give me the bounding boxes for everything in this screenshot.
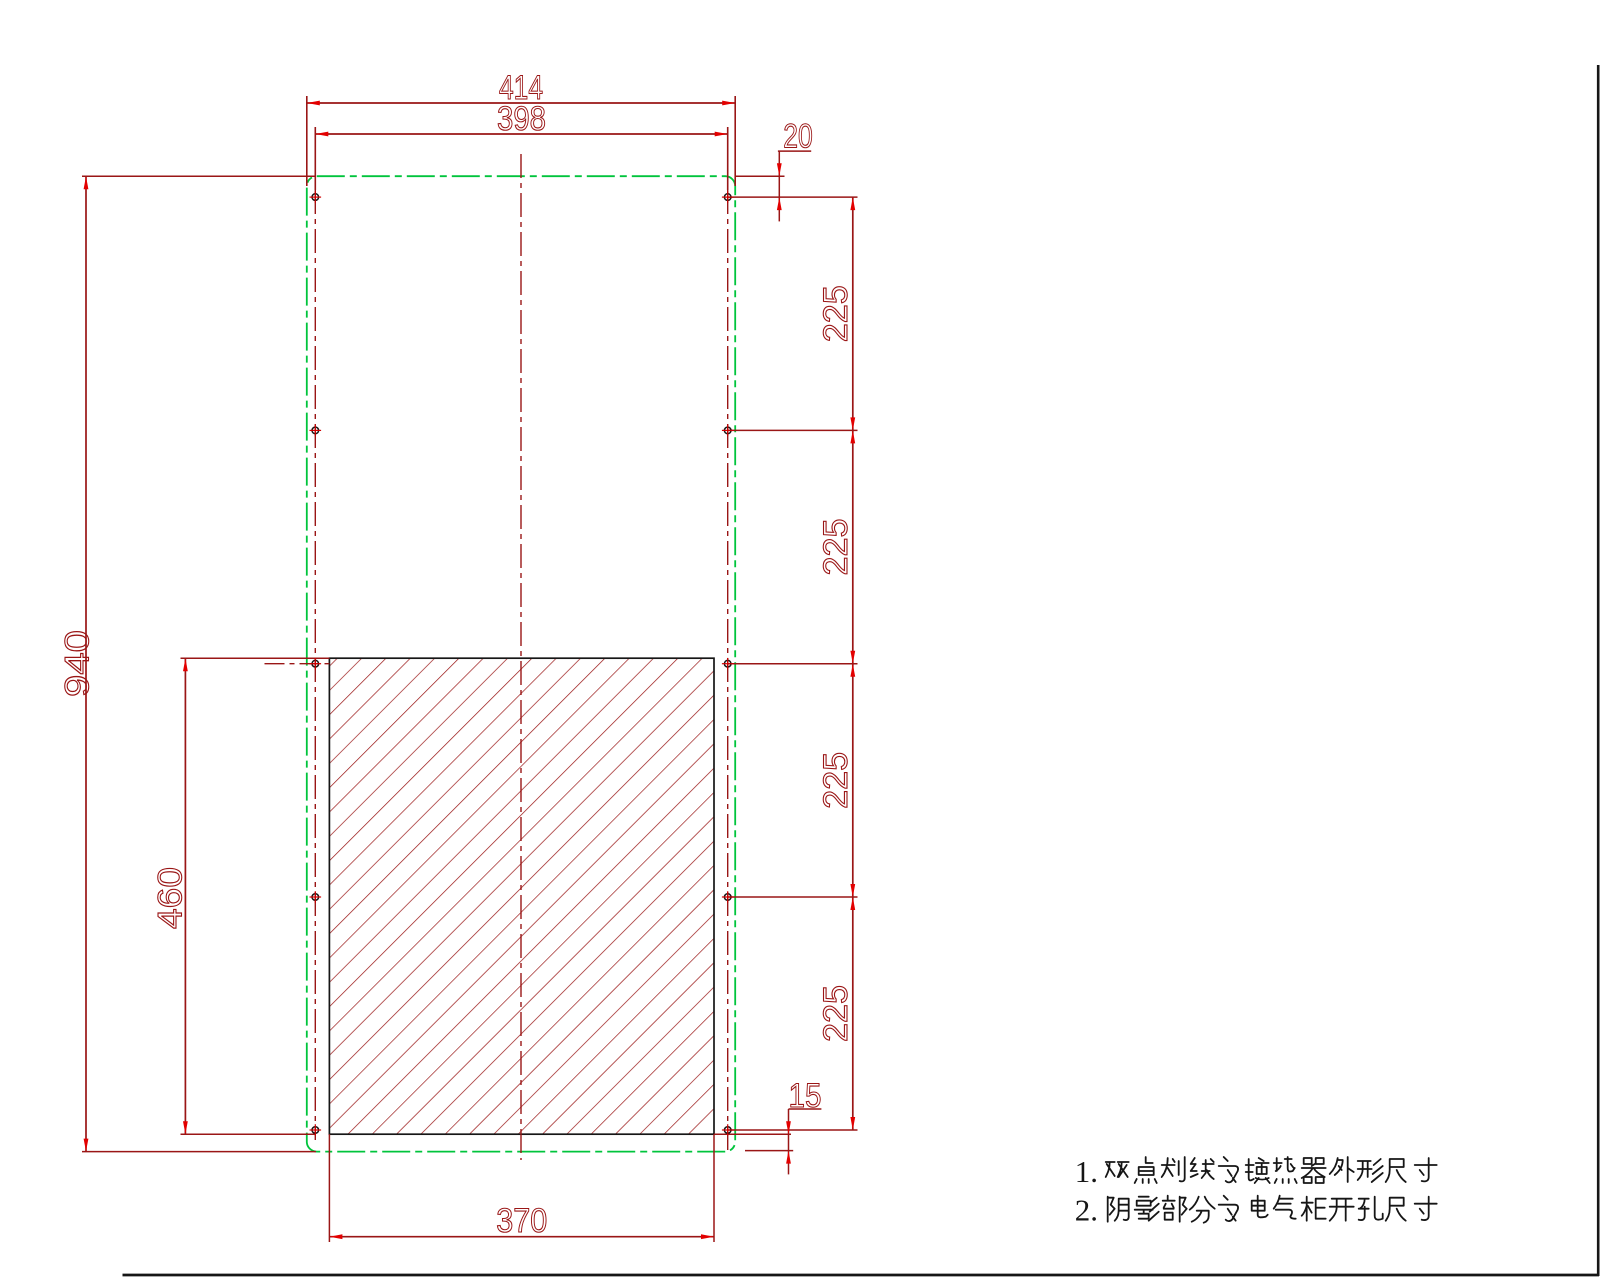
svg-text:15: 15 [789, 1077, 822, 1115]
svg-text:225: 225 [817, 519, 855, 576]
svg-text:370: 370 [496, 1202, 547, 1240]
svg-text:2.: 2. [1075, 1193, 1098, 1228]
svg-text:940: 940 [58, 630, 96, 697]
svg-text:460: 460 [151, 867, 189, 929]
svg-text:225: 225 [817, 752, 855, 809]
svg-text:1.: 1. [1075, 1154, 1098, 1189]
svg-text:20: 20 [783, 117, 813, 155]
svg-text:398: 398 [497, 100, 546, 138]
svg-text:225: 225 [817, 985, 855, 1042]
svg-text:225: 225 [817, 285, 855, 342]
